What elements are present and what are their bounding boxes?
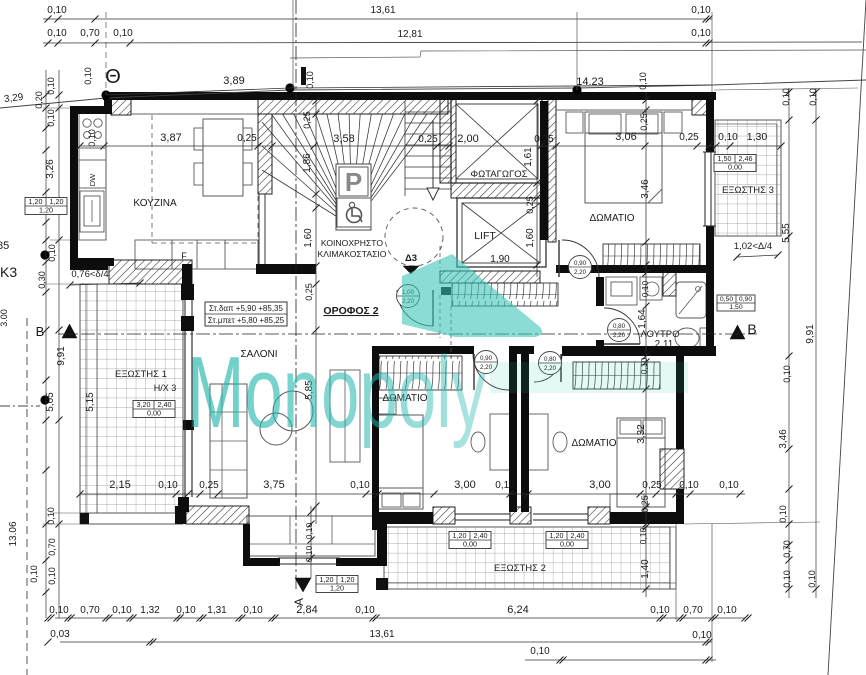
svg-text:0,00: 0,00	[560, 540, 574, 549]
svg-text:3,58: 3,58	[333, 133, 354, 145]
svg-text:12,81: 12,81	[397, 29, 422, 40]
svg-text:0,25: 0,25	[642, 480, 662, 491]
svg-text:0,90: 0,90	[739, 296, 752, 303]
svg-text:0,10: 0,10	[47, 244, 57, 262]
svg-text:0,10: 0,10	[350, 480, 370, 491]
svg-text:0,70: 0,70	[782, 540, 792, 558]
svg-text:0,10: 0,10	[83, 67, 93, 85]
svg-text:Στ.δαπ +5,90 +85,35: Στ.δαπ +5,90 +85,35	[209, 304, 283, 313]
svg-text:0,10: 0,10	[778, 505, 788, 523]
svg-text:0,10: 0,10	[46, 507, 56, 525]
svg-text:0,10: 0,10	[781, 88, 791, 106]
svg-text:A: A	[292, 598, 306, 606]
svg-text:LIFT: LIFT	[474, 230, 496, 242]
svg-text:0,10: 0,10	[718, 132, 738, 143]
svg-text:0,10: 0,10	[49, 605, 69, 616]
svg-text:0,00: 0,00	[463, 540, 477, 549]
svg-text:1,86: 1,86	[302, 153, 313, 173]
svg-text:0,10: 0,10	[355, 605, 375, 616]
svg-text:1,40: 1,40	[640, 559, 651, 579]
svg-text:0,70: 0,70	[47, 538, 57, 556]
svg-text:2,00: 2,00	[457, 133, 478, 145]
svg-text:1,32: 1,32	[140, 605, 160, 616]
svg-text:0,10: 0,10	[782, 570, 792, 588]
svg-text:3,00: 3,00	[454, 479, 475, 491]
svg-text:0,50: 0,50	[720, 296, 733, 303]
svg-text:2,20: 2,20	[574, 269, 587, 276]
svg-text:0,10: 0,10	[243, 605, 263, 616]
svg-text:ΚΟΙΝΟΧΡΗΣΤΟ: ΚΟΙΝΟΧΡΗΣΤΟ	[321, 238, 384, 248]
svg-text:0,25: 0,25	[237, 133, 257, 144]
svg-text:0,10: 0,10	[679, 480, 699, 491]
svg-text:0,10: 0,10	[691, 5, 711, 16]
svg-text:0,10: 0,10	[176, 605, 196, 616]
svg-text:ΚΟΥΖΙΝΑ: ΚΟΥΖΙΝΑ	[133, 198, 177, 209]
svg-text:1,20: 1,20	[39, 206, 53, 215]
svg-text:Η/Χ 3: Η/Χ 3	[154, 383, 177, 393]
svg-text:0,30: 0,30	[37, 271, 47, 289]
svg-text:3,00: 3,00	[589, 479, 610, 491]
svg-text:0,25: 0,25	[639, 113, 649, 131]
svg-text:3,26: 3,26	[45, 159, 56, 179]
svg-text:0,10: 0,10	[305, 71, 315, 89]
svg-text:2,11: 2,11	[655, 339, 674, 350]
svg-text:0,10: 0,10	[719, 480, 739, 491]
svg-text:ΔΩΜΑΤΙΟ: ΔΩΜΑΤΙΟ	[589, 213, 634, 224]
svg-text:B: B	[36, 324, 45, 339]
svg-text:0,25: 0,25	[418, 134, 438, 145]
svg-text:3,46: 3,46	[640, 179, 651, 199]
svg-text:0,25: 0,25	[679, 132, 699, 143]
svg-text:0,80: 0,80	[544, 356, 557, 363]
svg-text:B: B	[747, 321, 756, 337]
svg-text:0,10: 0,10	[46, 77, 56, 95]
svg-text:0,90: 0,90	[574, 260, 587, 267]
svg-text:1,60: 1,60	[525, 228, 536, 248]
svg-text:0,10: 0,10	[717, 605, 737, 616]
svg-text:0,10: 0,10	[87, 129, 97, 147]
svg-text:0,10: 0,10	[47, 28, 67, 39]
svg-text:13,61: 13,61	[370, 5, 395, 16]
svg-text:5,55: 5,55	[781, 223, 792, 243]
svg-text:85: 85	[0, 240, 9, 252]
svg-text:0,80: 0,80	[613, 323, 626, 330]
svg-text:9,91: 9,91	[56, 346, 67, 366]
svg-text:ΟΡΟΦΟΣ 2: ΟΡΟΦΟΣ 2	[323, 305, 378, 317]
svg-text:1,60: 1,60	[303, 228, 314, 248]
svg-text:Στ.μπετ +5,80 +85,25: Στ.μπετ +5,80 +85,25	[208, 316, 285, 325]
svg-text:0,10: 0,10	[807, 570, 817, 588]
svg-text:0,10: 0,10	[158, 480, 178, 491]
svg-text:0,10: 0,10	[113, 28, 133, 39]
svg-text:1,61: 1,61	[523, 147, 534, 167]
svg-text:0,76<δ/4: 0,76<δ/4	[71, 269, 108, 280]
svg-text:0,10: 0,10	[782, 365, 792, 383]
svg-text:2,15: 2,15	[109, 479, 130, 491]
svg-text:0,10: 0,10	[530, 646, 550, 657]
svg-text:3,87: 3,87	[160, 132, 181, 144]
svg-text:0,10: 0,10	[47, 567, 57, 585]
svg-text:0,25: 0,25	[304, 283, 314, 301]
svg-text:ΕΞΩΣΤΗΣ 1: ΕΞΩΣΤΗΣ 1	[115, 369, 167, 380]
svg-text:0,10: 0,10	[47, 5, 67, 16]
svg-text:Θ: Θ	[105, 66, 121, 88]
svg-text:1,20: 1,20	[330, 584, 344, 593]
svg-text:Monopoly: Monopoly	[187, 337, 486, 449]
svg-text:6,24: 6,24	[507, 604, 528, 616]
svg-text:13,61: 13,61	[369, 629, 394, 640]
svg-text:0,10: 0,10	[808, 88, 818, 106]
svg-text:3,06: 3,06	[615, 131, 636, 143]
svg-text:0,10: 0,10	[692, 630, 712, 641]
svg-text:0,10: 0,10	[640, 280, 650, 297]
svg-text:ΚΛΙΜΑΚΟΣΤΑΣΙΟ: ΚΛΙΜΑΚΟΣΤΑΣΙΟ	[318, 249, 387, 259]
svg-text:1,50: 1,50	[729, 304, 742, 311]
svg-text:0,10: 0,10	[46, 109, 56, 127]
svg-text:0,25: 0,25	[302, 111, 312, 129]
svg-text:9,91: 9,91	[805, 324, 816, 344]
svg-text:0,70: 0,70	[80, 28, 100, 39]
svg-text:0,70: 0,70	[683, 605, 703, 616]
svg-text:0,10: 0,10	[650, 605, 670, 616]
svg-text:13.06: 13.06	[8, 521, 19, 546]
svg-text:0,25: 0,25	[199, 480, 219, 491]
svg-text:5,05: 5,05	[45, 392, 56, 412]
svg-text:1,02<Δ/4: 1,02<Δ/4	[734, 241, 772, 252]
svg-text:ΕΞΩΣΤΗΣ 2: ΕΞΩΣΤΗΣ 2	[494, 563, 546, 574]
svg-text:3,89: 3,89	[223, 75, 244, 87]
svg-text:0,10: 0,10	[495, 480, 515, 491]
svg-text:0,00: 0,00	[147, 409, 161, 418]
svg-text:3.00: 3.00	[0, 309, 9, 327]
svg-text:0,10: 0,10	[29, 565, 39, 583]
svg-text:1,31: 1,31	[207, 605, 227, 616]
svg-text:3,46: 3,46	[778, 429, 789, 449]
svg-text:0,10: 0,10	[691, 28, 711, 39]
svg-text:1,64: 1,64	[637, 309, 648, 329]
svg-text:DW: DW	[88, 173, 97, 186]
svg-text:Δ3: Δ3	[405, 253, 417, 264]
svg-text:0,25: 0,25	[525, 196, 535, 214]
svg-text:ΕΞΩΣΤΗΣ 3: ΕΞΩΣΤΗΣ 3	[722, 185, 774, 196]
svg-text:0,20: 0,20	[34, 91, 44, 109]
svg-text:0,00: 0,00	[728, 163, 742, 172]
svg-text:0,25: 0,25	[640, 495, 650, 513]
svg-text:0,10: 0,10	[304, 522, 314, 539]
svg-text:1,30: 1,30	[747, 131, 768, 143]
svg-text:ΦΩΤΑΓΩΓΟΣ: ΦΩΤΑΓΩΓΟΣ	[471, 169, 528, 180]
svg-text:2,20: 2,20	[613, 332, 626, 339]
svg-text:0,03: 0,03	[50, 629, 70, 640]
svg-text:ΔΩΜΑΤΙΟ: ΔΩΜΑΤΙΟ	[571, 438, 616, 449]
svg-text:0,10: 0,10	[638, 527, 648, 544]
svg-text:P: P	[345, 167, 362, 197]
svg-text:1,90: 1,90	[490, 254, 510, 265]
svg-text:5,15: 5,15	[85, 392, 96, 412]
svg-text:0,10: 0,10	[112, 605, 132, 616]
svg-text:0,70: 0,70	[80, 605, 100, 616]
svg-text:0,10: 0,10	[638, 72, 648, 90]
svg-text:3,75: 3,75	[263, 479, 284, 491]
svg-text:3,32: 3,32	[636, 424, 647, 444]
svg-text:K3: K3	[0, 264, 17, 280]
